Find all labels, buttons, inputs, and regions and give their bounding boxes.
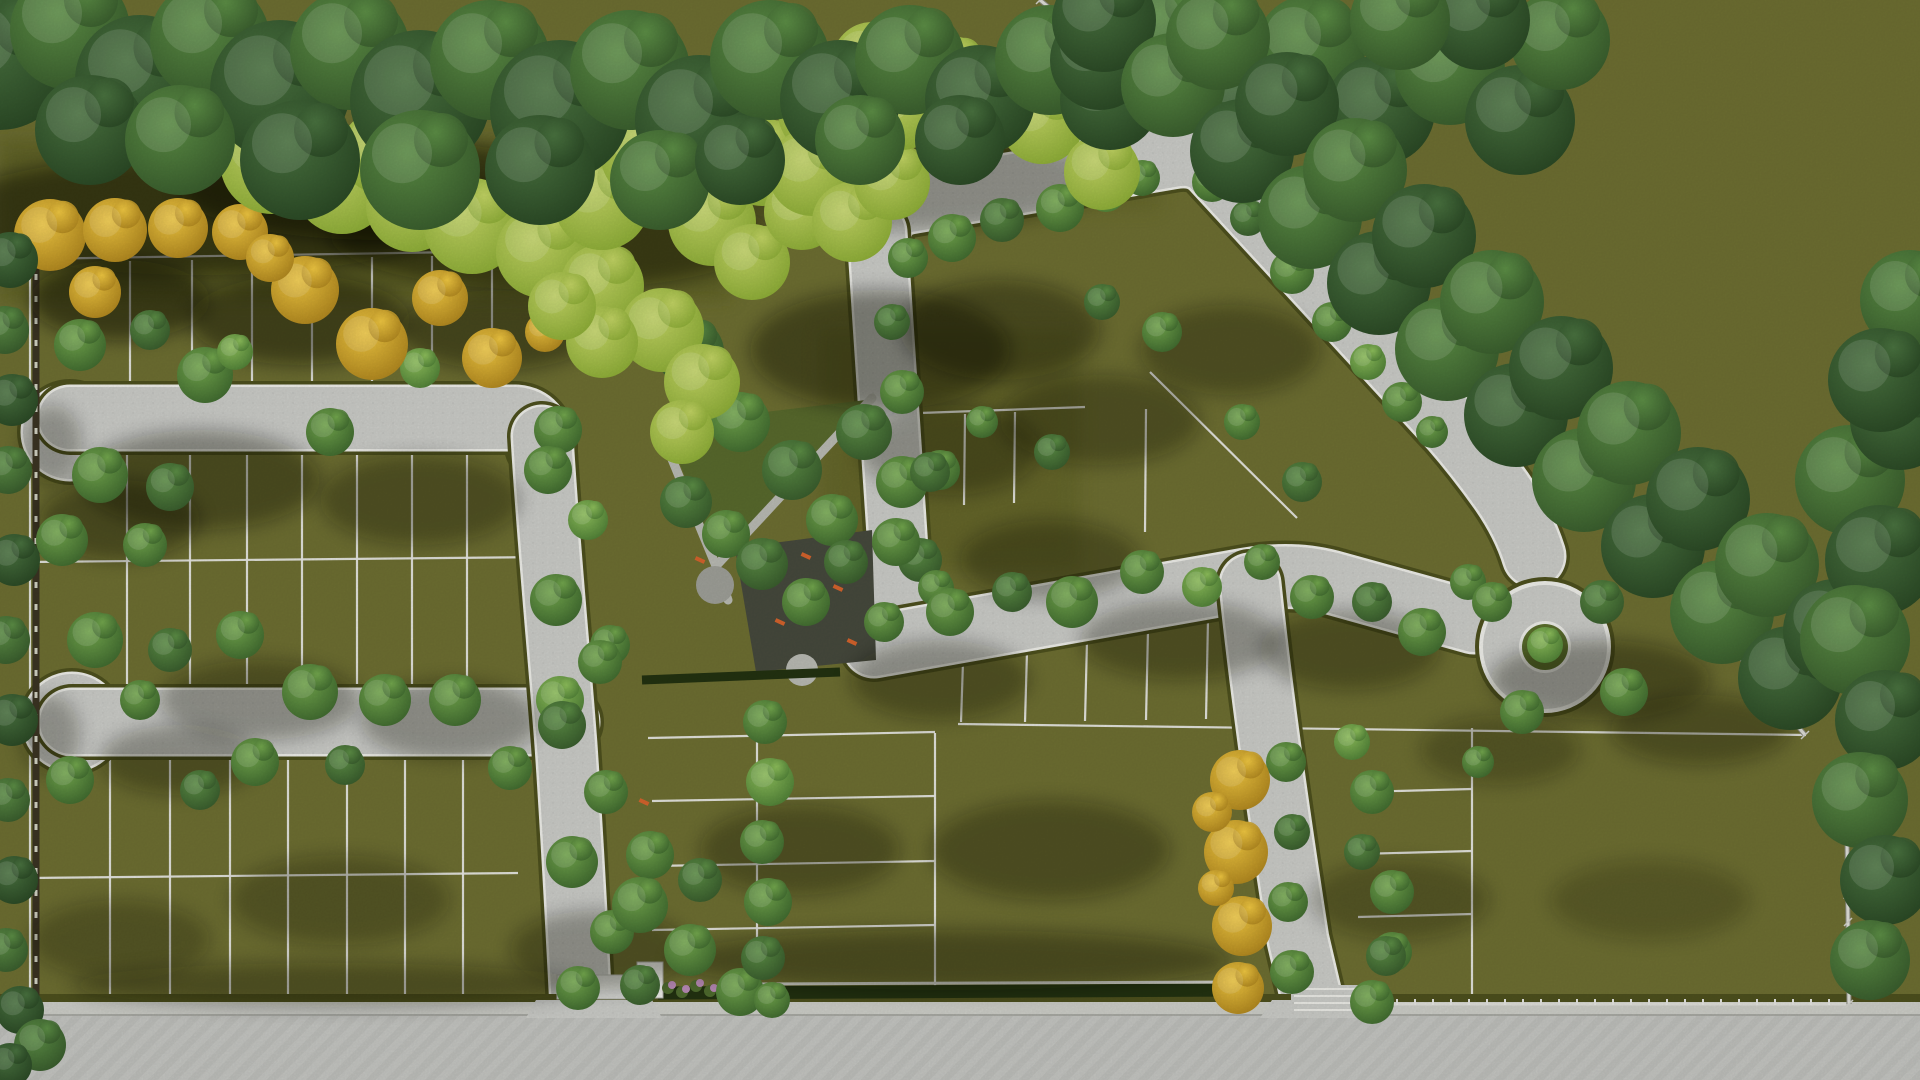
site-plan-aerial-rendering: [0, 0, 1920, 1080]
grain-overlay: [0, 0, 1920, 1080]
masterplan-canvas: [0, 0, 1920, 1080]
